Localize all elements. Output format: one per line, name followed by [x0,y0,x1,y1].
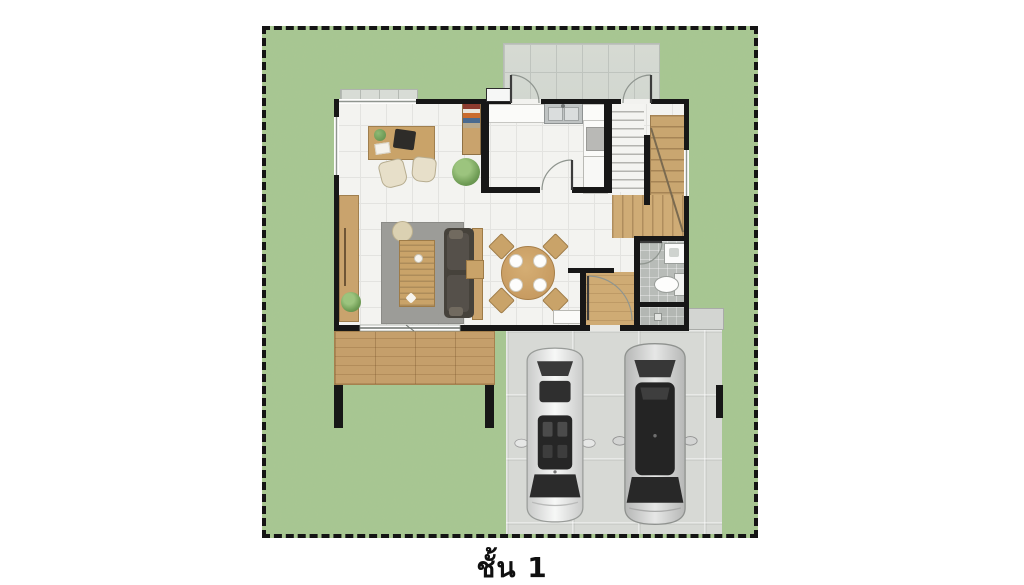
office-chair [411,156,437,183]
plate [533,278,547,292]
plate [509,254,523,268]
wood-deck [334,331,495,385]
wall-stair-divider [644,135,650,205]
wall-stair-left [604,99,612,193]
wall-top [334,99,689,104]
staircase-upper-dashed [612,104,644,192]
car-silver-sedan [612,334,698,534]
floor-plant [452,158,480,186]
entry-hall-floor [584,272,634,330]
garage [506,330,722,534]
shoe-bench [553,310,583,324]
wall-right [684,99,689,330]
terrace [503,43,660,101]
wall-kitchen-left [481,99,489,193]
floor-plant [341,292,361,312]
wall-kitchen-bottom [481,187,540,193]
pouf [392,221,413,242]
floorplan-page: ชั้น 1 [0,0,1024,585]
desk-monitor [393,129,416,151]
garage-side-step [688,308,724,330]
dining-table [501,246,555,300]
ac-unit [486,88,511,102]
wall-left [334,99,339,330]
stove [586,127,606,151]
plate [509,278,523,292]
sink-basin [548,107,563,121]
kitchen-sink [544,103,583,124]
sink-basin [564,107,579,121]
cup [414,254,423,263]
side-table [466,260,484,279]
desk-plant [374,129,386,141]
sofa-pillow [449,230,463,239]
desk-papers [374,142,390,155]
wall-bath-left [634,236,640,330]
plot-boundary [262,26,758,538]
sofa-pillow [449,307,463,316]
deck-post-left [334,385,343,428]
car-white-sedan [514,340,596,530]
coffee-table [399,240,435,307]
wall-entry-top [568,268,614,273]
bookshelf [462,103,481,155]
toilet [654,276,679,293]
faucet-icon [561,104,565,108]
shower-drain [654,313,662,321]
deck-post-right [485,385,494,428]
wall-bath-top [634,236,689,241]
plate [533,254,547,268]
bathroom-sink [664,243,686,264]
wall-bath-mid [634,302,689,307]
floor-label: ชั้น 1 [0,546,1024,585]
garage-wall-stub [716,385,723,418]
wall-entry-left [580,268,586,330]
